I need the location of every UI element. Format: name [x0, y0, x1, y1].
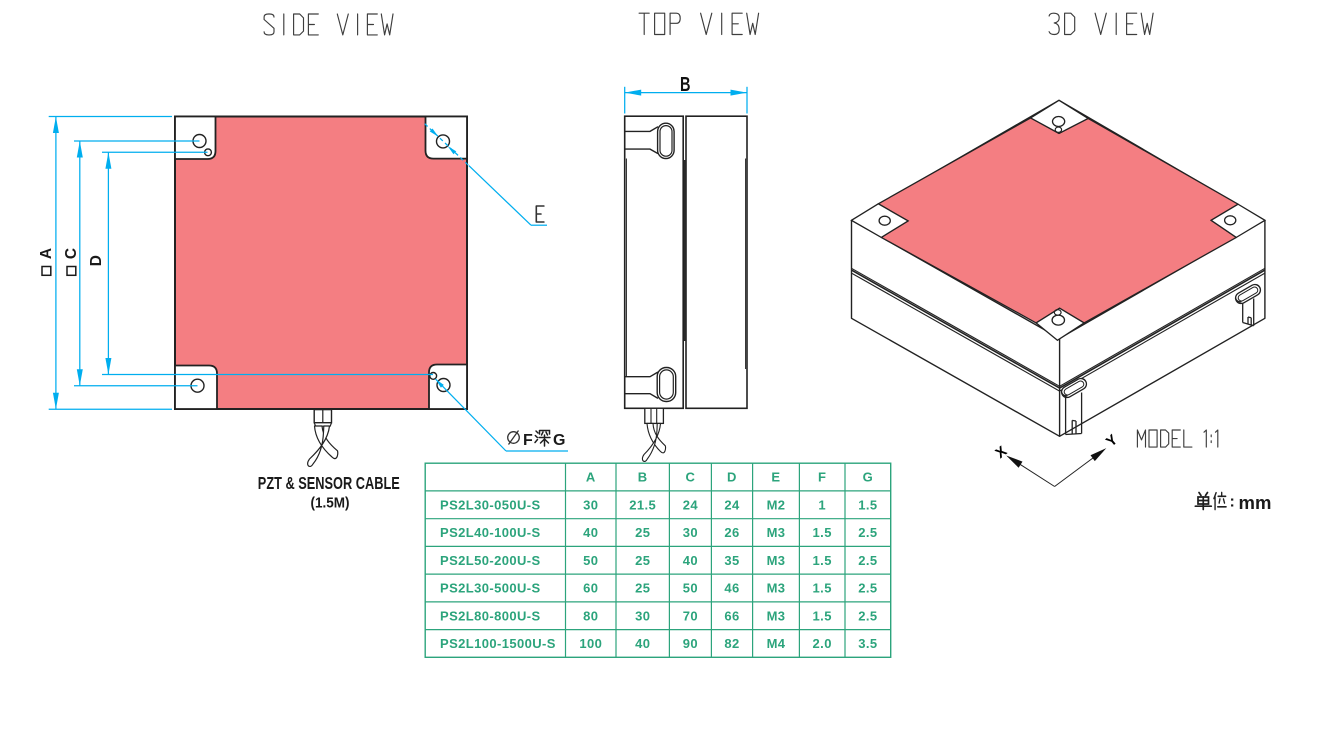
svg-text:35: 35	[724, 553, 739, 568]
svg-text:A: A	[38, 248, 55, 259]
svg-text:F: F	[523, 432, 533, 449]
svg-text:1.5: 1.5	[813, 553, 832, 568]
svg-text:50: 50	[583, 553, 598, 568]
svg-text:1.5: 1.5	[813, 608, 832, 623]
svg-text:M3: M3	[767, 553, 786, 568]
svg-text:PS2L100-1500U-S: PS2L100-1500U-S	[440, 636, 556, 651]
svg-text:(1.5M): (1.5M)	[311, 495, 350, 512]
svg-text:M3: M3	[767, 608, 786, 623]
svg-text:D: D	[88, 255, 105, 266]
svg-text:D: D	[727, 470, 737, 485]
svg-text:B: B	[638, 470, 648, 485]
svg-text:2.5: 2.5	[858, 581, 877, 596]
svg-text:M2: M2	[767, 497, 786, 512]
svg-text:40: 40	[635, 636, 650, 651]
svg-text:F: F	[818, 470, 826, 485]
svg-text:40: 40	[683, 553, 698, 568]
svg-text:M4: M4	[767, 636, 786, 651]
svg-text:2.5: 2.5	[858, 525, 877, 540]
svg-text:30: 30	[683, 525, 698, 540]
svg-text:PS2L40-100U-S: PS2L40-100U-S	[440, 525, 541, 540]
svg-text:1.5: 1.5	[858, 497, 877, 512]
svg-text:B: B	[680, 74, 691, 96]
svg-text:C: C	[685, 470, 695, 485]
svg-text:A: A	[586, 470, 596, 485]
svg-text:50: 50	[683, 581, 698, 596]
svg-text:26: 26	[724, 525, 739, 540]
svg-text:PS2L80-800U-S: PS2L80-800U-S	[440, 608, 541, 623]
svg-text:24: 24	[724, 497, 740, 512]
svg-text:82: 82	[724, 636, 739, 651]
svg-text:1.5: 1.5	[813, 581, 832, 596]
svg-text:1.5: 1.5	[813, 525, 832, 540]
svg-text:46: 46	[724, 581, 739, 596]
svg-text:M3: M3	[767, 581, 786, 596]
svg-text:80: 80	[583, 608, 598, 623]
svg-text:21.5: 21.5	[629, 497, 656, 512]
svg-text:C: C	[63, 248, 80, 259]
svg-text:2.5: 2.5	[858, 553, 877, 568]
svg-text:100: 100	[579, 636, 602, 651]
svg-text:G: G	[863, 470, 874, 485]
svg-text:G: G	[553, 432, 565, 449]
svg-text:PS2L30-050U-S: PS2L30-050U-S	[440, 497, 541, 512]
svg-text:M3: M3	[767, 525, 786, 540]
svg-text:90: 90	[683, 636, 698, 651]
svg-text:66: 66	[724, 608, 739, 623]
svg-text:E: E	[771, 470, 780, 485]
svg-text:40: 40	[583, 525, 598, 540]
svg-text:PZT & SENSOR CABLE: PZT & SENSOR CABLE	[258, 473, 400, 493]
svg-text:30: 30	[583, 497, 598, 512]
svg-text:3.5: 3.5	[858, 636, 877, 651]
svg-text:70: 70	[683, 608, 698, 623]
svg-text::: :	[1230, 494, 1235, 511]
svg-text:25: 25	[635, 553, 650, 568]
svg-text:25: 25	[635, 581, 650, 596]
svg-text:25: 25	[635, 525, 650, 540]
svg-text:60: 60	[583, 581, 598, 596]
svg-text:2.5: 2.5	[858, 608, 877, 623]
svg-text:24: 24	[683, 497, 699, 512]
svg-text:2.0: 2.0	[813, 636, 832, 651]
svg-text:mm: mm	[1239, 492, 1272, 513]
svg-text:30: 30	[635, 608, 650, 623]
svg-text:1: 1	[818, 497, 826, 512]
svg-text:PS2L30-500U-S: PS2L30-500U-S	[440, 581, 541, 596]
svg-text:PS2L50-200U-S: PS2L50-200U-S	[440, 553, 541, 568]
